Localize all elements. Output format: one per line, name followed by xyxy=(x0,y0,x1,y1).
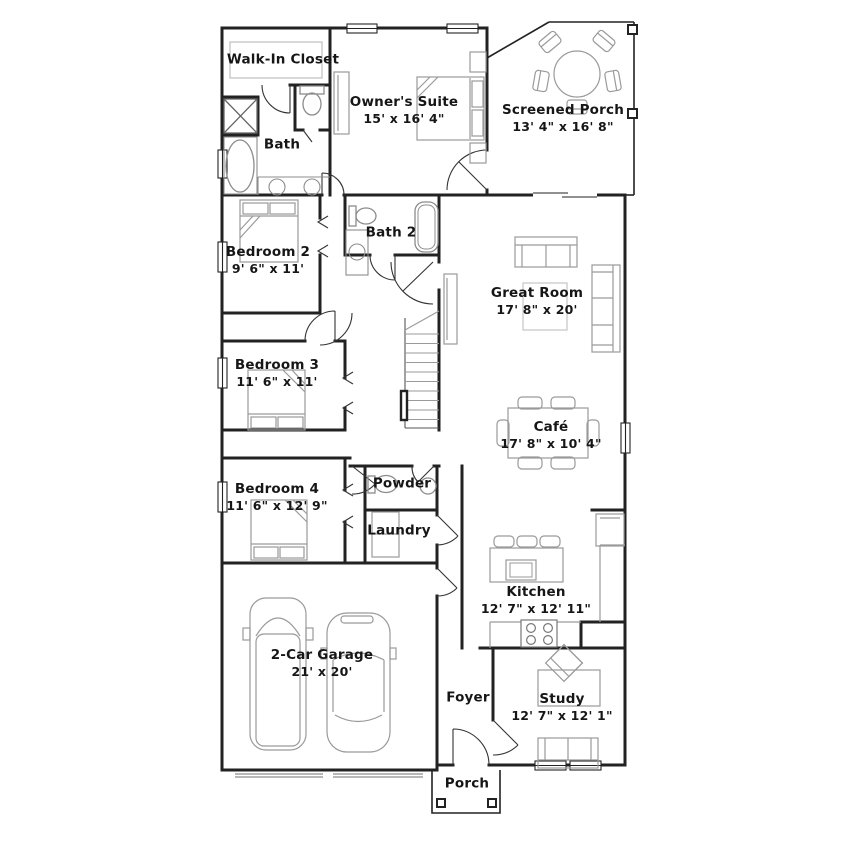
bathtub xyxy=(415,202,438,252)
window xyxy=(535,761,566,770)
window xyxy=(347,24,377,33)
garage-car xyxy=(321,613,396,752)
sliding-door xyxy=(533,190,597,200)
stair-rail xyxy=(401,391,407,420)
bar-stool xyxy=(494,536,514,547)
floor-plan-svg xyxy=(0,0,849,849)
dresser xyxy=(334,72,349,134)
porch-post xyxy=(628,109,637,118)
porch-chair xyxy=(532,70,549,92)
porch-chair xyxy=(592,29,616,53)
toilet xyxy=(300,86,324,115)
room-label-bedroom3: Bedroom 311' 6" x 11' xyxy=(235,357,319,390)
porch-chair xyxy=(604,70,621,92)
room-label-walk-in-closet: Walk-In Closet xyxy=(227,52,339,69)
room-label-porch: Porch xyxy=(445,776,489,793)
bar-stool xyxy=(517,536,537,547)
room-label-bedroom2: Bedroom 29' 6" x 11' xyxy=(226,244,310,277)
door-suite-to-porch xyxy=(447,150,487,190)
toilet xyxy=(349,206,376,226)
study-chair xyxy=(546,645,583,682)
bar-stool xyxy=(540,536,560,547)
room-label-garage: 2-Car Garage21' x 20' xyxy=(271,647,374,680)
door-study xyxy=(493,720,518,755)
room-label-kitchen: Kitchen12' 7" x 12' 11" xyxy=(481,584,591,617)
room-label-cafe: Café17' 8" x 10' 4" xyxy=(500,419,601,452)
room-label-foyer: Foyer xyxy=(446,690,490,707)
bathtub xyxy=(224,137,257,194)
room-label-bath2: Bath 2 xyxy=(366,225,417,242)
room-label-study: Study12' 7" x 12' 1" xyxy=(511,691,612,724)
console-table xyxy=(444,274,457,344)
door-closet xyxy=(262,85,290,113)
door-suite-hall-arc xyxy=(391,262,433,304)
cafe-chair xyxy=(518,457,542,469)
kitchen-island xyxy=(490,548,563,582)
room-label-bath: Bath xyxy=(264,137,300,154)
door-garage-entry xyxy=(437,568,457,596)
door-laundry xyxy=(437,515,458,545)
porch-post xyxy=(488,799,496,807)
nightstand xyxy=(470,52,486,72)
garage-contents xyxy=(235,598,423,777)
porch-post xyxy=(628,25,637,34)
door-toilet-room xyxy=(303,130,312,142)
room-label-laundry: Laundry xyxy=(367,523,430,540)
floor-plan-page: Walk-In Closet Bath Owner's Suite15' x 1… xyxy=(0,0,849,849)
room-label-screened-porch: Screened Porch13' 4" x 16' 8" xyxy=(502,102,624,135)
cafe-chair xyxy=(518,397,542,409)
room-label-bedroom4: Bedroom 411' 6" x 12' 9" xyxy=(226,481,327,514)
round-table xyxy=(554,51,600,97)
room-label-great-room: Great Room17' 8" x 20' xyxy=(491,285,583,318)
room-label-owners-suite: Owner's Suite15' x 16' 4" xyxy=(350,94,458,127)
door-corridor-to-suite xyxy=(322,173,344,195)
door-front xyxy=(453,729,489,765)
window xyxy=(621,423,630,453)
garage-doors xyxy=(235,774,423,777)
vanity xyxy=(258,177,330,195)
shower xyxy=(224,99,257,133)
sofa xyxy=(515,237,577,267)
window xyxy=(218,358,227,388)
staircase xyxy=(401,311,439,428)
stove xyxy=(521,620,557,647)
kitchen-fixtures xyxy=(490,514,625,648)
cafe-chair xyxy=(551,397,575,409)
sofa-right xyxy=(592,265,620,352)
door-hall-arc xyxy=(320,313,352,345)
door-bedroom3 xyxy=(305,311,335,341)
window xyxy=(570,761,601,770)
refrigerator xyxy=(596,514,624,546)
window xyxy=(447,24,478,33)
porch-chair xyxy=(538,30,562,54)
cafe-chair xyxy=(551,457,575,469)
porch-post xyxy=(437,799,445,807)
room-label-powder: Powder xyxy=(373,476,431,493)
